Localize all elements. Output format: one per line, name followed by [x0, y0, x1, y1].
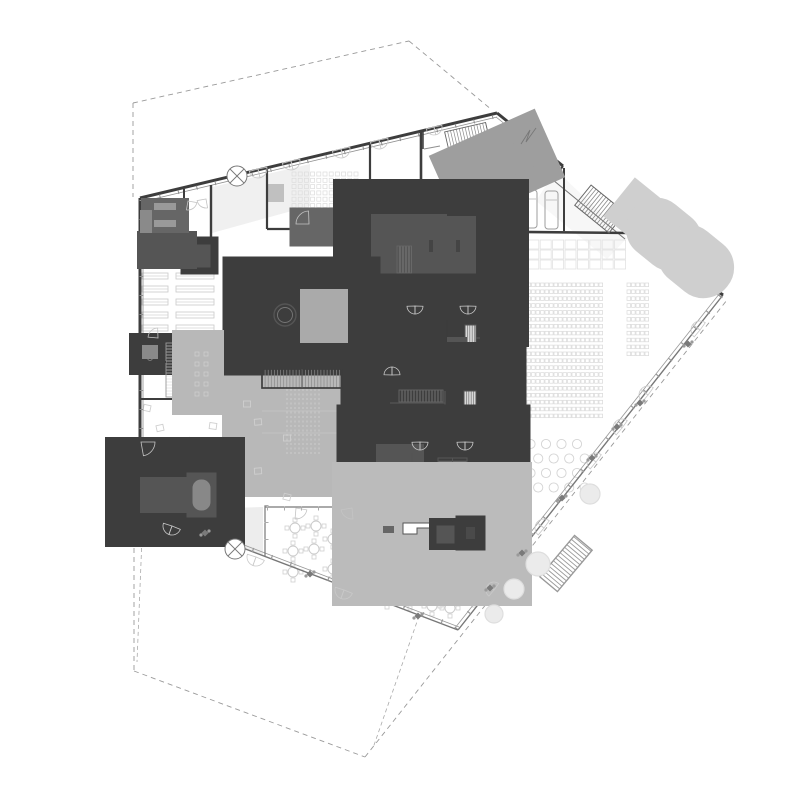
service-shaft-cab: [441, 530, 450, 539]
floor-plan: [0, 0, 800, 800]
chair: [163, 222, 167, 225]
planter-stadium: [674, 241, 718, 282]
truck-box: [510, 147, 530, 165]
cabinet: [143, 225, 149, 230]
plant-leaf: [691, 321, 705, 337]
bookshelf: [176, 286, 214, 292]
column-symbol: [225, 539, 245, 559]
bookshelf: [142, 273, 168, 279]
chair: [170, 205, 174, 208]
counter-dark: [383, 526, 394, 533]
potted-plant: [634, 399, 645, 406]
seat-bank-right: [627, 283, 649, 356]
tree: [526, 552, 550, 576]
apex-stair-edge: [424, 146, 440, 149]
chair: [156, 205, 160, 208]
door-swing: [197, 199, 207, 208]
column-symbol: [227, 166, 247, 186]
tree: [504, 579, 524, 599]
site-dash: [133, 41, 409, 103]
sw-elevator-cab: [197, 484, 206, 506]
service-shaft-dark: [466, 527, 475, 539]
cafe-table: [304, 539, 324, 559]
seat-bank-center: [527, 283, 603, 418]
floor-plan-page: [0, 0, 800, 800]
chair: [170, 222, 174, 225]
tree: [485, 605, 503, 623]
cafe-table: [285, 518, 305, 538]
plant-leaf: [247, 554, 264, 566]
pouf: [156, 424, 164, 431]
cafe-table: [306, 516, 326, 536]
bookshelf: [176, 299, 214, 305]
bookshelf: [142, 312, 168, 318]
bookshelf: [142, 325, 168, 331]
site-dash: [409, 41, 492, 110]
chair: [163, 205, 167, 208]
plant-leaf: [535, 519, 549, 535]
meeting-table: [153, 210, 177, 221]
void-outline: [262, 388, 342, 457]
bookshelf: [142, 299, 168, 305]
pilaster: [456, 240, 460, 252]
pilaster: [429, 240, 433, 252]
cafe-table: [283, 541, 303, 561]
pouf: [209, 423, 217, 430]
site-dash: [373, 616, 419, 748]
bookshelf: [176, 312, 214, 318]
pouf: [143, 404, 151, 411]
lectern: [272, 188, 280, 198]
bookshelf: [142, 286, 168, 292]
wc-fixture: [146, 349, 154, 355]
site-dash: [134, 671, 365, 757]
pod-inner-room: [312, 301, 336, 331]
sw-stair-landing: [154, 491, 182, 499]
chair: [156, 222, 160, 225]
tree: [580, 484, 600, 504]
door-swing: [295, 508, 307, 519]
stair-landing: [152, 246, 182, 254]
